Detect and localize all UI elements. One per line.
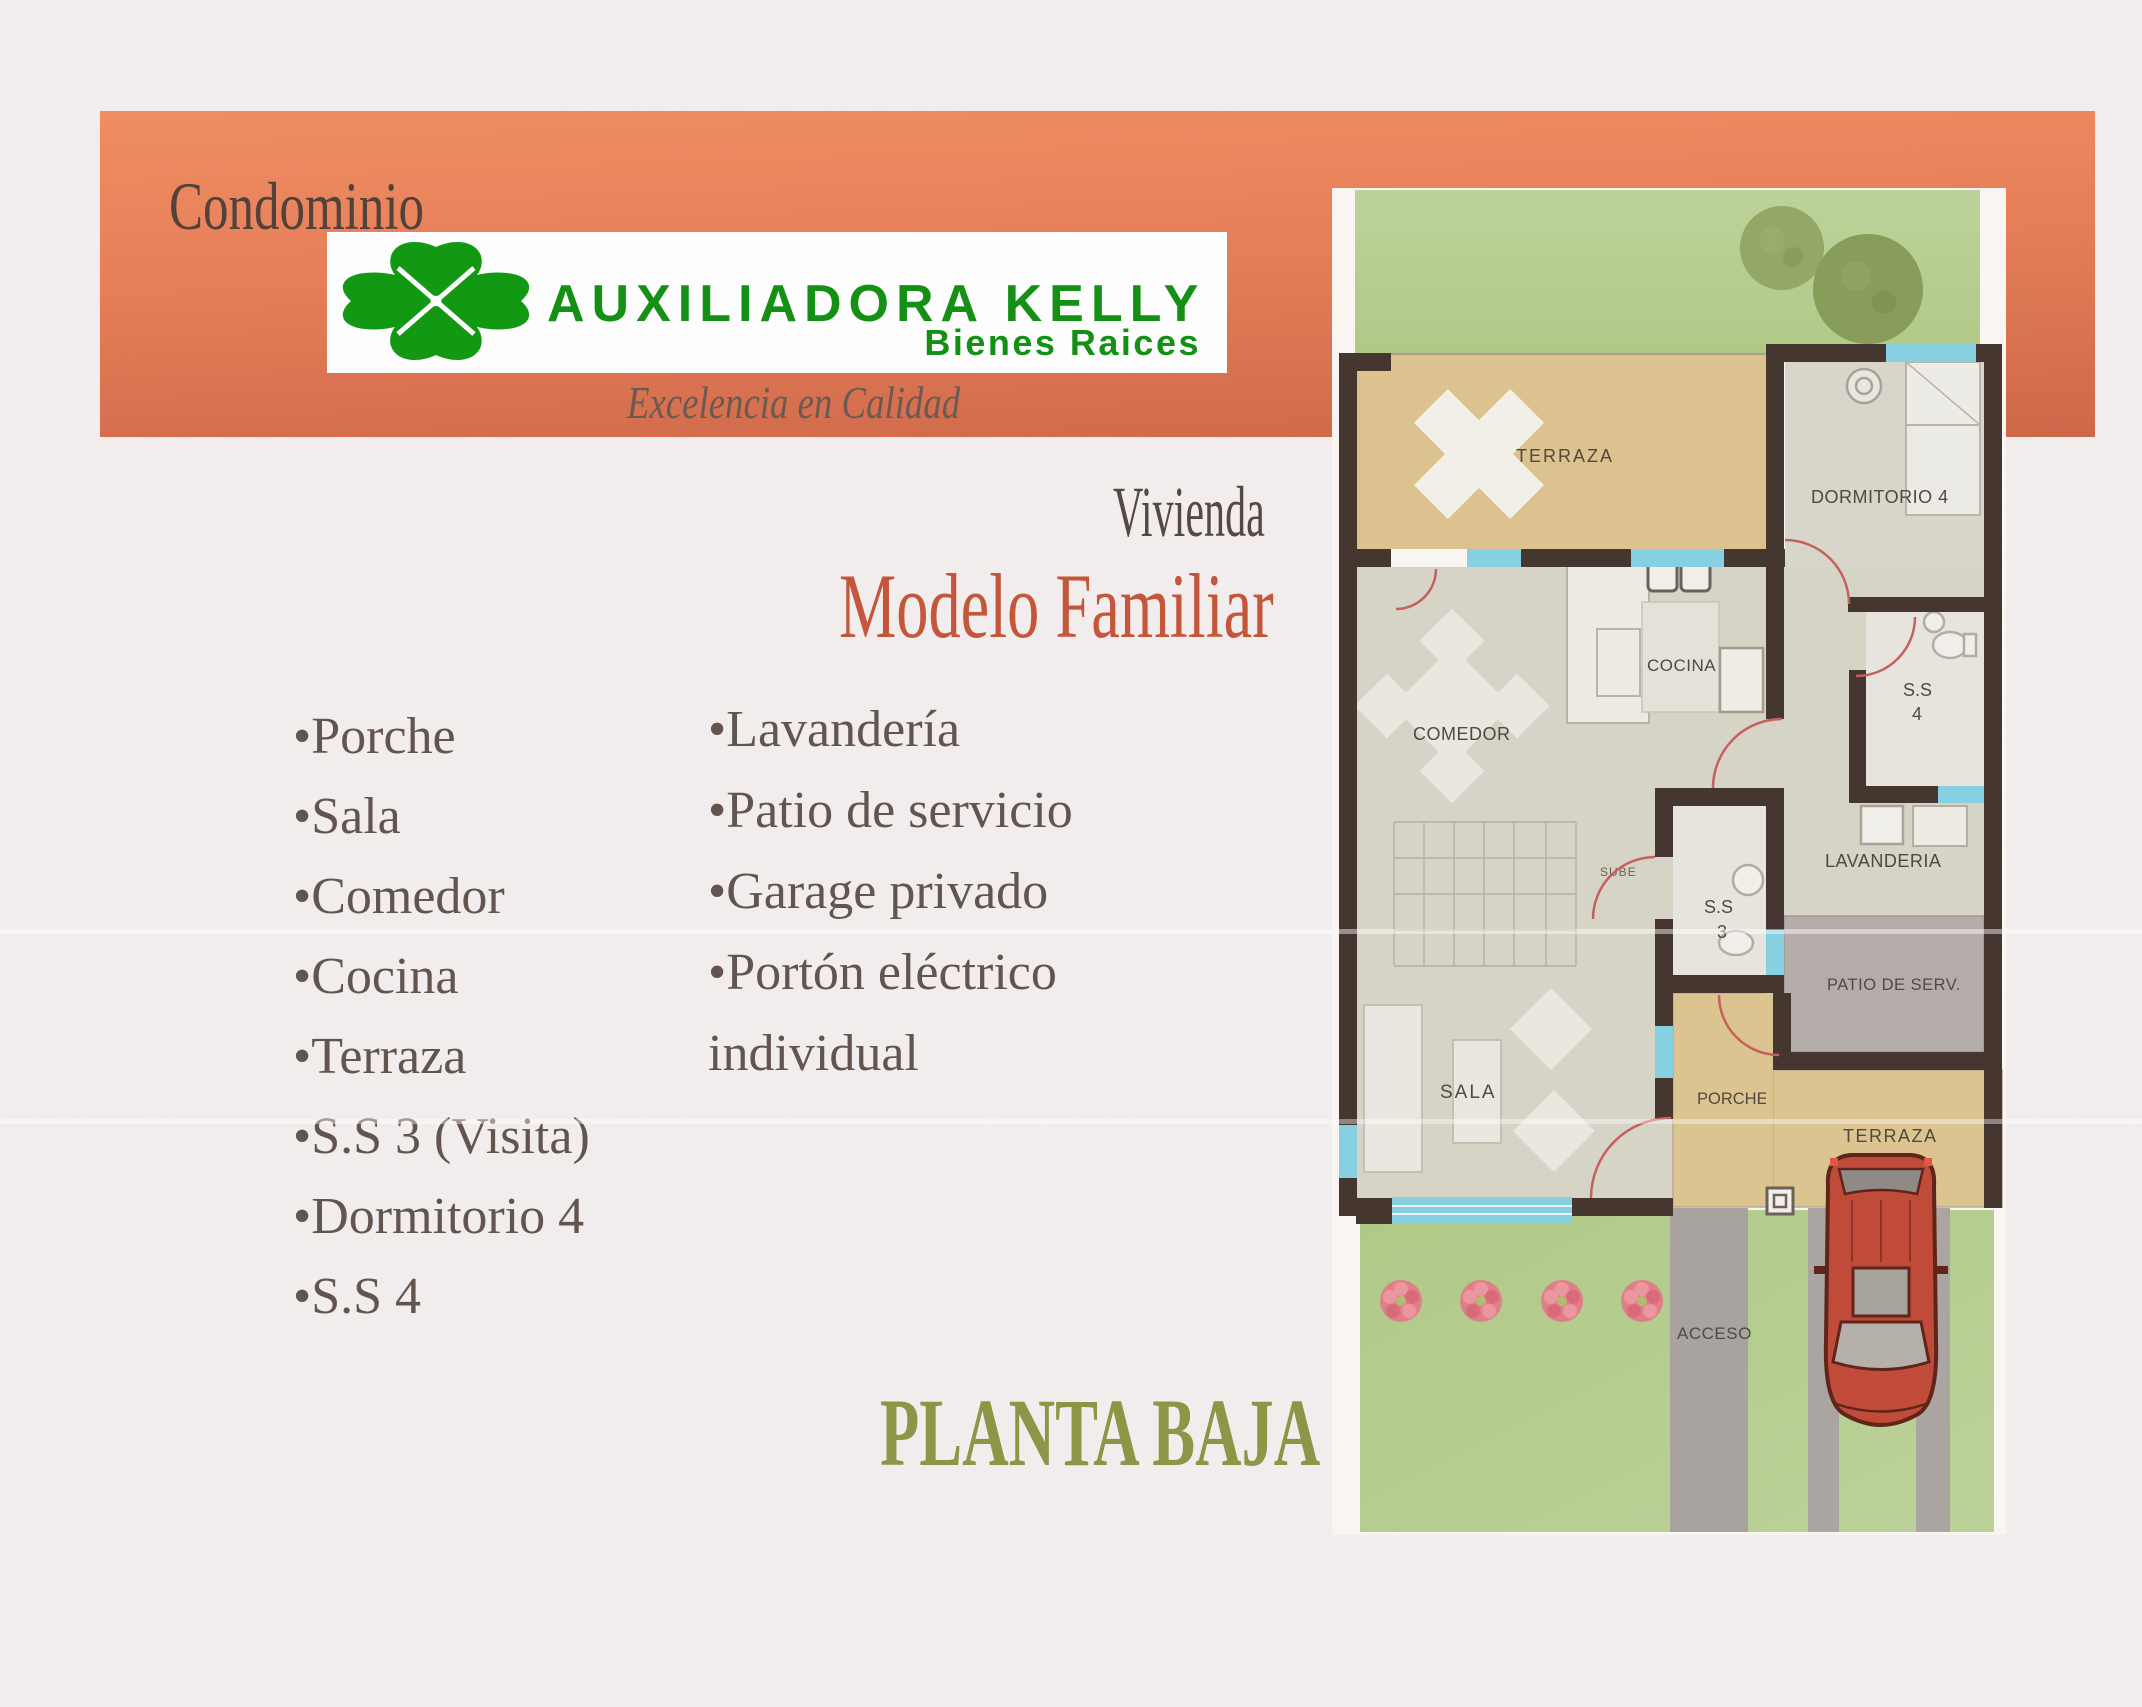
svg-text:S.S: S.S [1903,680,1932,700]
svg-text:COCINA: COCINA [1647,656,1716,675]
svg-text:4: 4 [1912,704,1922,724]
svg-text:PATIO DE SERV.: PATIO DE SERV. [1827,976,1961,994]
svg-text:TERRAZA: TERRAZA [1843,1126,1938,1146]
svg-text:ACCESO: ACCESO [1677,1324,1752,1343]
svg-text:SUBE: SUBE [1600,865,1637,879]
svg-text:DORMITORIO 4: DORMITORIO 4 [1811,487,1949,507]
svg-text:TERRAZA: TERRAZA [1516,446,1614,466]
svg-text:SALA: SALA [1440,1082,1497,1103]
svg-text:LAVANDERIA: LAVANDERIA [1825,851,1941,871]
svg-text:S.S: S.S [1704,897,1733,917]
svg-text:PORCHE: PORCHE [1697,1090,1768,1108]
svg-text:COMEDOR: COMEDOR [1413,724,1511,744]
